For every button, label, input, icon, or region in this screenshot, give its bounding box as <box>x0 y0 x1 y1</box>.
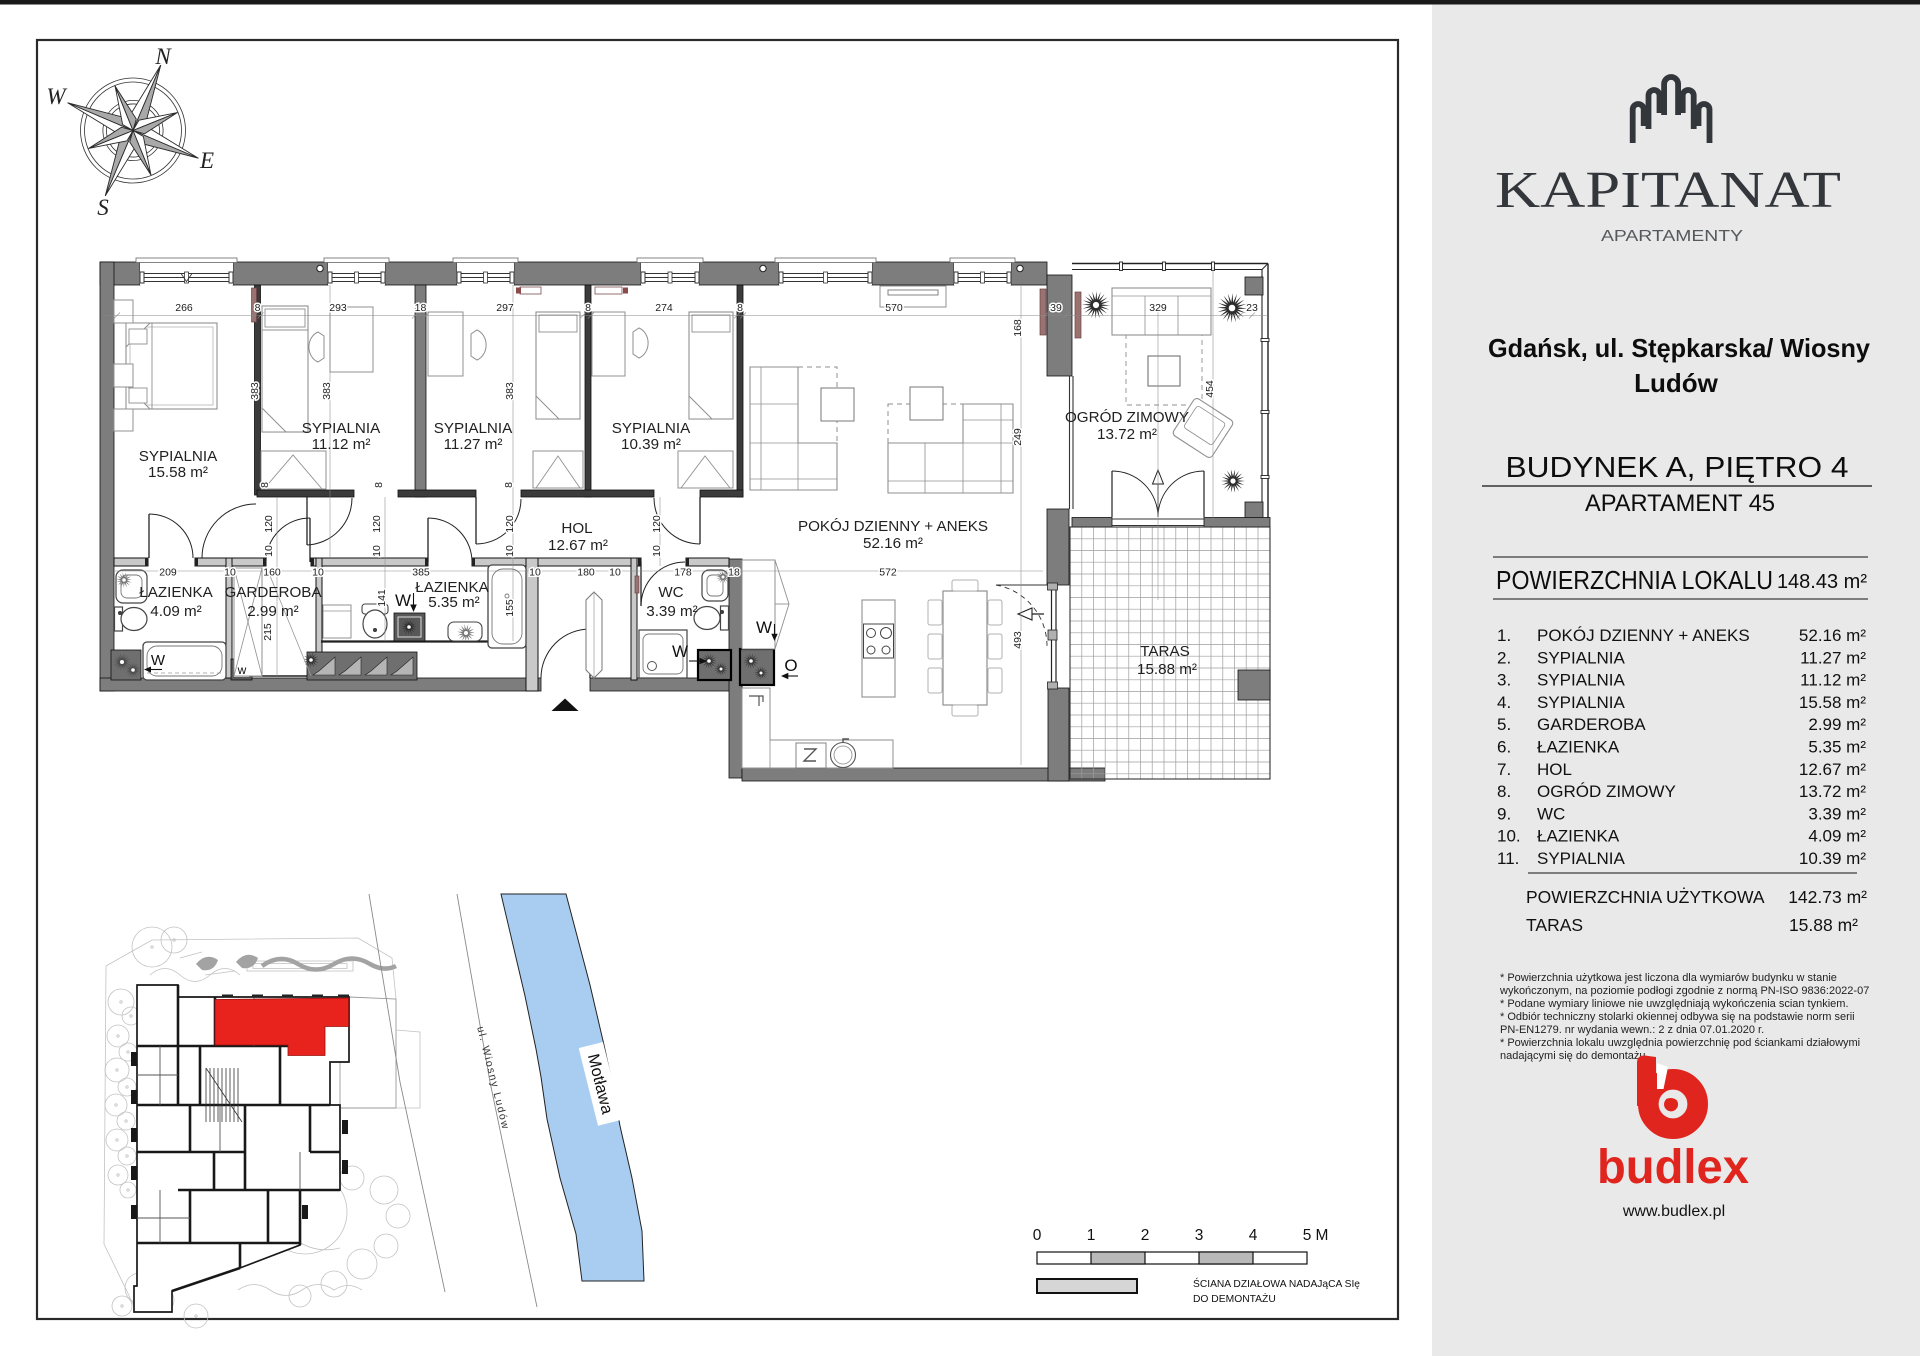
svg-text:3.39 m²: 3.39 m² <box>646 603 698 620</box>
svg-text:10: 10 <box>609 567 621 579</box>
svg-text:5.35 m²: 5.35 m² <box>1808 738 1866 757</box>
svg-text:383: 383 <box>504 382 516 400</box>
svg-text:13.72 m²: 13.72 m² <box>1097 426 1157 443</box>
svg-text:15.88 m²: 15.88 m² <box>1789 915 1858 935</box>
svg-text:O: O <box>784 656 797 675</box>
svg-text:274: 274 <box>655 302 673 314</box>
svg-text:383: 383 <box>249 382 261 400</box>
svg-text:Gdańsk, ul. Stępkarska/ Wiosny: Gdańsk, ul. Stępkarska/ Wiosny <box>1488 333 1871 363</box>
svg-text:SYPIALNIA: SYPIALNIA <box>434 420 513 437</box>
svg-text:GARDEROBA: GARDEROBA <box>1537 715 1646 734</box>
svg-text:10: 10 <box>504 545 516 557</box>
svg-text:12.67 m²: 12.67 m² <box>548 537 608 554</box>
svg-text:2.99 m²: 2.99 m² <box>247 603 299 620</box>
svg-text:570: 570 <box>885 302 903 314</box>
svg-text:10: 10 <box>371 545 383 557</box>
svg-text:* Powierzchnia użytkowa jest l: * Powierzchnia użytkowa jest liczona dla… <box>1500 972 1837 984</box>
svg-text:329: 329 <box>1149 302 1167 314</box>
svg-text:KAPITANAT: KAPITANAT <box>1495 162 1841 219</box>
svg-text:W: W <box>46 84 67 109</box>
svg-text:APARTAMENT 45: APARTAMENT 45 <box>1585 490 1775 517</box>
svg-text:PN-EN1279. nr wydania wewn.: 2: PN-EN1279. nr wydania wewn.: 2 z dnia 07… <box>1500 1024 1764 1036</box>
svg-text:W: W <box>151 652 166 669</box>
svg-text:2: 2 <box>1141 1227 1150 1244</box>
svg-text:249: 249 <box>1012 428 1024 446</box>
svg-text:SYPIALNIA: SYPIALNIA <box>302 420 381 437</box>
svg-text:11.27 m²: 11.27 m² <box>444 436 503 453</box>
svg-text:8: 8 <box>737 302 743 314</box>
svg-text:2.: 2. <box>1497 648 1511 667</box>
svg-text:10: 10 <box>529 567 541 579</box>
svg-text:budlex: budlex <box>1597 1141 1749 1194</box>
svg-text:SYPIALNIA: SYPIALNIA <box>139 448 218 465</box>
svg-text:12.67 m²: 12.67 m² <box>1799 760 1866 779</box>
svg-text:9.: 9. <box>1497 804 1511 823</box>
svg-text:WC: WC <box>658 584 683 601</box>
svg-text:SYPIALNIA: SYPIALNIA <box>1537 849 1626 868</box>
svg-text:5: 5 <box>1303 1227 1312 1244</box>
svg-text:142.73 m²: 142.73 m² <box>1788 887 1867 907</box>
svg-text:454: 454 <box>1204 380 1216 398</box>
svg-text:15.88 m²: 15.88 m² <box>1137 661 1197 678</box>
svg-text:SYPIALNIA: SYPIALNIA <box>1537 648 1626 667</box>
svg-text:10: 10 <box>312 567 324 579</box>
svg-text:15.58 m²: 15.58 m² <box>148 464 208 481</box>
svg-text:HOL: HOL <box>561 520 592 537</box>
svg-text:168: 168 <box>1012 319 1024 337</box>
svg-text:SYPIALNIA: SYPIALNIA <box>612 420 691 437</box>
svg-text:4.09 m²: 4.09 m² <box>150 603 202 620</box>
svg-text:0: 0 <box>1033 1227 1042 1244</box>
svg-text:10: 10 <box>651 545 663 557</box>
svg-text:w: w <box>237 663 247 677</box>
svg-text:N: N <box>154 44 172 69</box>
svg-text:ŚCIANA DZIAŁOWA NADAJąCA SIę: ŚCIANA DZIAŁOWA NADAJąCA SIę <box>1193 1277 1360 1290</box>
svg-text:23: 23 <box>1246 302 1258 314</box>
svg-text:52.16 m²: 52.16 m² <box>1799 626 1866 645</box>
svg-text:6.: 6. <box>1497 738 1511 757</box>
svg-text:3: 3 <box>1195 1227 1204 1244</box>
svg-text:HOL: HOL <box>1537 760 1572 779</box>
svg-text:141: 141 <box>376 589 388 607</box>
svg-text:39: 39 <box>1050 302 1062 314</box>
svg-text:1.: 1. <box>1497 626 1511 645</box>
svg-text:11.27 m²: 11.27 m² <box>1800 648 1866 667</box>
svg-text:11.12 m²: 11.12 m² <box>312 436 371 453</box>
svg-text:E: E <box>199 148 214 173</box>
svg-text:572: 572 <box>879 567 897 579</box>
svg-text:180: 180 <box>577 567 595 579</box>
svg-text:www.budlex.pl: www.budlex.pl <box>1622 1203 1725 1220</box>
svg-text:APARTAMENTY: APARTAMENTY <box>1601 228 1743 245</box>
svg-text:Ludów: Ludów <box>1634 368 1719 398</box>
svg-text:10.39 m²: 10.39 m² <box>621 436 681 453</box>
svg-text:293: 293 <box>329 302 347 314</box>
svg-text:wykończonym, na poziomie podło: wykończonym, na poziomie podłogi zgodnie… <box>1499 985 1869 997</box>
svg-text:18: 18 <box>728 567 740 579</box>
svg-text:10: 10 <box>224 567 236 579</box>
svg-text:8: 8 <box>259 482 271 488</box>
svg-text:POKÓJ DZIENNY + ANEKS: POKÓJ DZIENNY + ANEKS <box>1537 626 1750 645</box>
svg-text:POWIERZCHNIA LOKALU: POWIERZCHNIA LOKALU <box>1496 565 1773 595</box>
svg-text:ŁAZIENKA: ŁAZIENKA <box>139 584 213 601</box>
svg-text:4.: 4. <box>1497 693 1511 712</box>
svg-text:nadającymi się do demontażu.: nadającymi się do demontażu. <box>1500 1050 1649 1062</box>
svg-text:2.99 m²: 2.99 m² <box>1808 715 1866 734</box>
svg-text:8: 8 <box>503 482 515 488</box>
svg-text:385: 385 <box>412 567 430 579</box>
svg-text:POKÓJ DZIENNY + ANEKS: POKÓJ DZIENNY + ANEKS <box>798 518 988 535</box>
svg-text:215: 215 <box>262 623 274 641</box>
svg-text:ŁAZIENKA: ŁAZIENKA <box>1537 738 1620 757</box>
svg-text:120: 120 <box>371 515 383 533</box>
svg-text:266: 266 <box>175 302 193 314</box>
svg-text:160: 160 <box>263 567 281 579</box>
svg-text:10.: 10. <box>1497 827 1521 846</box>
svg-text:TARAS: TARAS <box>1140 643 1190 660</box>
svg-text:M: M <box>1316 1227 1329 1244</box>
svg-text:S: S <box>97 195 109 220</box>
svg-text:OGRÓD ZIMOWY: OGRÓD ZIMOWY <box>1537 782 1676 801</box>
svg-text:120: 120 <box>504 515 516 533</box>
svg-text:DO DEMONTAŻU: DO DEMONTAŻU <box>1193 1292 1276 1305</box>
svg-text:TARAS: TARAS <box>1526 915 1583 935</box>
svg-text:1: 1 <box>1087 1227 1096 1244</box>
svg-text:8: 8 <box>373 482 385 488</box>
svg-text:W: W <box>756 618 772 637</box>
svg-text:3.39 m²: 3.39 m² <box>1808 804 1866 823</box>
svg-text:5.: 5. <box>1497 715 1511 734</box>
svg-text:8: 8 <box>585 302 591 314</box>
svg-text:10.39 m²: 10.39 m² <box>1799 849 1866 868</box>
svg-text:4: 4 <box>1249 1227 1258 1244</box>
svg-text:4.09 m²: 4.09 m² <box>1808 827 1866 846</box>
svg-text:13.72 m²: 13.72 m² <box>1799 782 1866 801</box>
svg-text:BUDYNEK A, PIĘTRO 4: BUDYNEK A, PIĘTRO 4 <box>1506 452 1849 484</box>
svg-text:11.12 m²: 11.12 m² <box>1800 671 1866 690</box>
svg-text:* Odbiór techniczny stolarki o: * Odbiór techniczny stolarki okiennej od… <box>1500 1011 1855 1023</box>
svg-text:148.43 m²: 148.43 m² <box>1777 571 1867 593</box>
svg-text:POWIERZCHNIA UŻYTKOWA: POWIERZCHNIA UŻYTKOWA <box>1526 887 1765 907</box>
svg-text:5.35 m²: 5.35 m² <box>428 594 480 611</box>
svg-text:120: 120 <box>651 515 663 533</box>
svg-text:8: 8 <box>255 302 261 314</box>
svg-text:8.: 8. <box>1497 782 1511 801</box>
svg-text:120: 120 <box>263 515 275 533</box>
svg-text:18: 18 <box>415 302 427 314</box>
svg-text:W: W <box>395 591 411 610</box>
svg-text:GARDEROBA: GARDEROBA <box>224 584 322 601</box>
svg-text:155: 155 <box>504 599 516 617</box>
svg-text:15.58 m²: 15.58 m² <box>1799 693 1866 712</box>
svg-text:* Podane wymiary liniowe nie u: * Podane wymiary liniowe nie uwzględniaj… <box>1500 998 1849 1010</box>
svg-text:OGRÓD ZIMOWY: OGRÓD ZIMOWY <box>1065 409 1189 426</box>
svg-text:383: 383 <box>321 382 333 400</box>
svg-text:ŁAZIENKA: ŁAZIENKA <box>1537 827 1620 846</box>
svg-text:7.: 7. <box>1497 760 1511 779</box>
svg-text:SYPIALNIA: SYPIALNIA <box>1537 671 1626 690</box>
svg-text:209: 209 <box>159 567 177 579</box>
svg-text:11.: 11. <box>1497 849 1519 868</box>
svg-text:178: 178 <box>674 567 692 579</box>
svg-text:3.: 3. <box>1497 671 1511 690</box>
svg-text:297: 297 <box>496 302 514 314</box>
svg-text:493: 493 <box>1012 631 1024 649</box>
svg-text:WC: WC <box>1537 804 1565 823</box>
svg-text:W: W <box>672 642 688 661</box>
svg-text:10: 10 <box>263 545 275 557</box>
svg-text:* Powierzchnia lokalu uwzględn: * Powierzchnia lokalu uwzględnia powierz… <box>1500 1037 1860 1049</box>
svg-text:52.16 m²: 52.16 m² <box>863 535 923 552</box>
svg-text:SYPIALNIA: SYPIALNIA <box>1537 693 1626 712</box>
